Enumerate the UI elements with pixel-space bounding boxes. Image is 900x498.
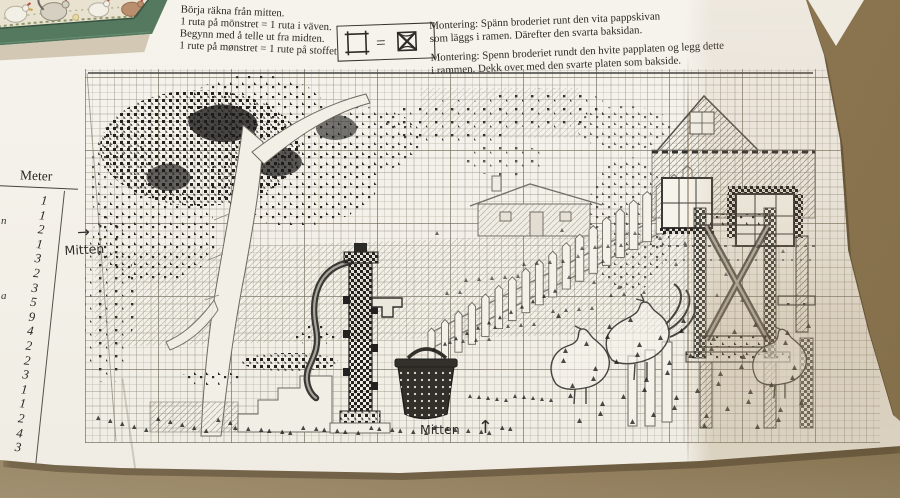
basket [395,349,457,419]
center-mark-bottom: Mitten ↑ [420,419,493,437]
right-arrow-icon: → [50,224,117,240]
cross-stitch-chart [85,69,880,443]
mounting-instructions: Montering: Spänn broderiet runt den vita… [429,2,861,77]
legend-empty-square-icon [345,31,370,56]
cut-off-letter: n [1,215,7,227]
legend-cross-stitch-icon [398,32,417,51]
center-mark-bottom-label: Mitten [420,422,460,437]
legend-equals: = [376,33,386,52]
fold-crease-vertical [687,56,689,470]
thread-table-header: Meter [20,167,53,184]
chart-motif [85,69,880,443]
up-arrow-icon: ↑ [478,419,493,437]
center-mark-left: → Mitten [50,224,118,259]
photo-of-cross-stitch-pattern: Börja räkna från mitten. 1 ruta på mönst… [0,0,900,498]
stitch-legend-box: = [336,22,435,61]
center-mark-left-label: Mitten [64,241,104,258]
cut-off-letter: a [1,290,7,302]
distant-farmhouse [470,176,602,236]
pattern-sheet: Börja räkna från mitten. 1 ruta på mönst… [0,0,900,498]
hen-outline [551,326,609,404]
framed-embroidery-corner [0,0,187,65]
